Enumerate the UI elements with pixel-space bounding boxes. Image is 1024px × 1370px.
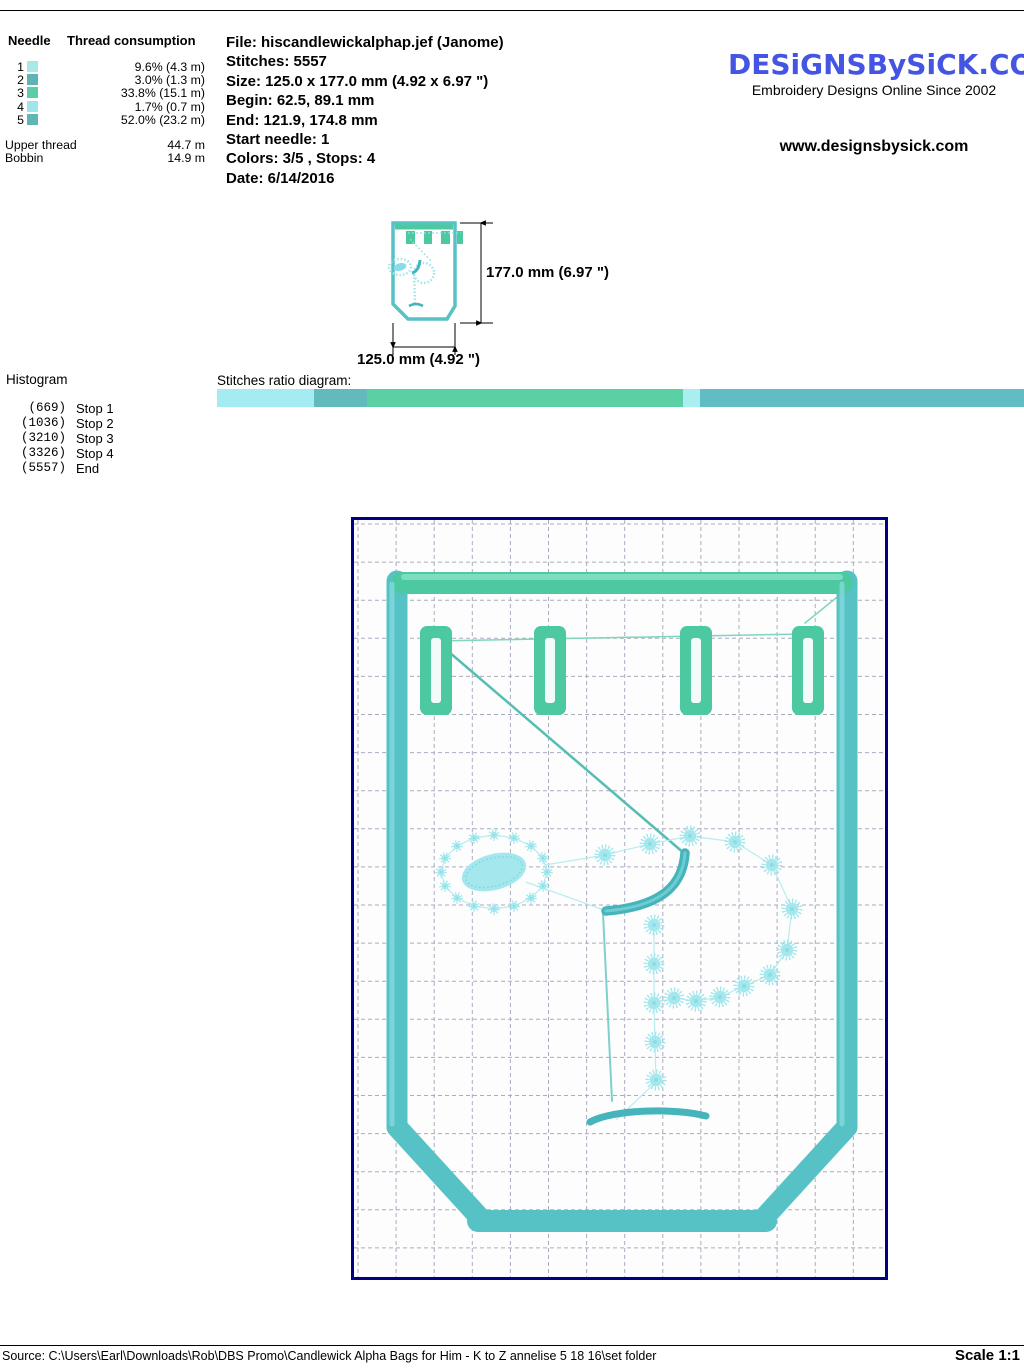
candlewick-star-core [440,871,442,873]
thumbnail-stem [414,274,415,303]
file-info-line: Date: 6/14/2016 [226,169,606,188]
candlewick-star-core [603,853,607,857]
candlewick-star-core [493,908,495,910]
candlewick-star-core [493,834,495,836]
candlewick-star-core [688,834,692,838]
candlewick-star-core [542,857,544,859]
needle-row: 23.0% (1.3 m) [0,73,215,86]
candlewick-star-core [768,973,772,977]
file-info-line: End: 121.9, 174.8 mm [226,111,606,130]
brand-website: www.designsbysick.com [728,138,1020,156]
histogram-row: (5557)End [2,461,172,476]
scale-label: Scale 1:1 [955,1347,1020,1364]
thread-link [545,855,605,865]
stop-stitch-count: (5557) [2,461,66,475]
ratio-segment [367,389,683,407]
stop-label: Stop 4 [76,446,114,461]
stop-stitch-count: (3326) [2,446,66,460]
bottom-divider [0,1345,1024,1346]
stem-guide-line [603,913,612,1101]
stop-label: Stop 3 [76,431,114,446]
height-dimension-label: 177.0 mm (6.97 ") [486,264,609,281]
buttonhole-tab-slot [431,638,441,703]
histogram-row: (3326)Stop 4 [2,446,172,461]
ratio-diagram-label: Stitches ratio diagram: [217,373,351,388]
buttonhole-tab-slot [545,638,555,703]
file-info-line: Size: 125.0 x 177.0 mm (4.92 x 6.97 ") [226,72,606,91]
file-info-line: Stitches: 5557 [226,52,606,71]
file-info-line: Colors: 3/5 , Stops: 4 [226,149,606,168]
brand-tagline: Embroidery Designs Online Since 2002 [728,82,1020,98]
design-preview [354,520,885,1277]
candlewick-star-core [444,857,446,859]
jump-stitch-line [434,634,804,641]
stop-stitch-count: (1036) [2,416,66,430]
width-dimension-label: 125.0 mm (4.92 ") [357,351,480,368]
border-chamfer-right [763,1127,847,1219]
needle-row: 19.6% (4.3 m) [0,60,215,73]
brand-logo: DESiGNSBySiCK.COM [728,50,1020,80]
needle-color-swatch [27,114,38,125]
stop-stitch-count: (669) [2,401,66,415]
candlewick-star-core [546,871,548,873]
candlewick-star-core [770,863,774,867]
candlewick-star-core [672,996,676,1000]
candlewick-star-core [742,984,746,988]
buttonhole-tab-slot [691,638,701,703]
file-info-line: File: hiscandlewickalphap.jef (Janome) [226,33,606,52]
upper-thread-value: 44.7 m [0,138,205,152]
candlewick-star-core [473,905,475,907]
needle-color-swatch [27,61,38,72]
stitches-ratio-bar [217,389,1024,407]
needle-row: 41.7% (0.7 m) [0,100,215,113]
top-divider [0,10,1024,11]
histogram-title: Histogram [6,372,68,387]
candlewick-star-core [444,885,446,887]
ratio-segment [217,389,314,407]
brand-block: DESiGNSBySiCK.COM Embroidery Designs Onl… [728,50,1020,156]
candlewick-star-core [790,907,794,911]
bobbin-value: 14.9 m [0,151,205,165]
stop-label: Stop 2 [76,416,114,431]
candlewick-star-core [652,923,656,927]
candlewick-star-core [785,948,789,952]
histogram-row: (669)Stop 1 [2,401,172,416]
histogram-row: (1036)Stop 2 [2,416,172,431]
needle-color-swatch [27,87,38,98]
candlewick-star-core [542,885,544,887]
candlewick-star-core [456,897,458,899]
serif-satin [590,1111,706,1122]
upper-thread-row: Upper thread 44.7 m [0,138,215,151]
needle-color-swatch [27,74,38,85]
candlewick-star-core [718,995,722,999]
bobbin-row: Bobbin 14.9 m [0,151,215,164]
ratio-segment [314,389,367,407]
stop-label: End [76,461,99,476]
ratio-segment [683,389,700,407]
file-info-block: File: hiscandlewickalphap.jef (Janome)St… [226,33,606,188]
needle-color-swatch [27,101,38,112]
source-path: Source: C:\Users\Earl\Downloads\Rob\DBS … [2,1349,656,1363]
candlewick-star-core [513,905,515,907]
candlewick-star-core [530,897,532,899]
candlewick-star-core [530,845,532,847]
candlewick-star-core [456,845,458,847]
print-preview-page: { "needle_table": { "col_needle": "Needl… [0,0,1024,1370]
file-info-line: Begin: 62.5, 89.1 mm [226,91,606,110]
stop-stitch-count: (3210) [2,431,66,445]
ratio-segment [700,389,1024,407]
candlewick-star-core [654,1078,658,1082]
candlewick-star-core [733,840,737,844]
design-preview-frame [351,517,888,1280]
candlewick-star-core [473,837,475,839]
border-chamfer-left [397,1127,481,1219]
candlewick-star-core [648,842,652,846]
buttonhole-tab-slot [803,638,813,703]
needle-row: 552.0% (23.2 m) [0,113,215,126]
candlewick-star-core [652,962,656,966]
histogram-row: (3210)Stop 3 [2,431,172,446]
stop-label: Stop 1 [76,401,114,416]
thread-column-header: Thread consumption [67,33,196,48]
candlewick-star-core [652,1001,656,1005]
candlewick-star-core [653,1040,657,1044]
candlewick-star-core [513,837,515,839]
needle-row: 333.8% (15.1 m) [0,86,215,99]
candlewick-star-core [694,999,698,1003]
needle-column-header: Needle [8,33,51,48]
file-info-line: Start needle: 1 [226,130,606,149]
